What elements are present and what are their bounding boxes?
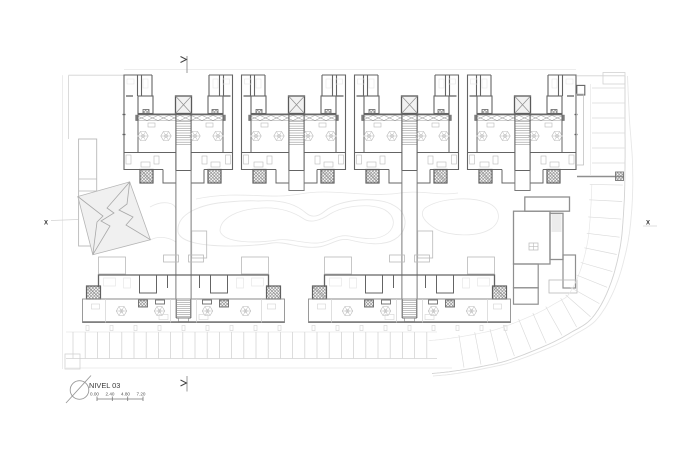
svg-text:X: X — [44, 221, 48, 227]
svg-text:X: X — [646, 221, 650, 227]
svg-text:0.00: 0.00 — [90, 392, 99, 397]
svg-text:2.40: 2.40 — [106, 392, 115, 397]
svg-text:7.20: 7.20 — [137, 392, 146, 397]
svg-text:NIVEL 03: NIVEL 03 — [89, 381, 120, 390]
svg-text:4.80: 4.80 — [121, 392, 130, 397]
